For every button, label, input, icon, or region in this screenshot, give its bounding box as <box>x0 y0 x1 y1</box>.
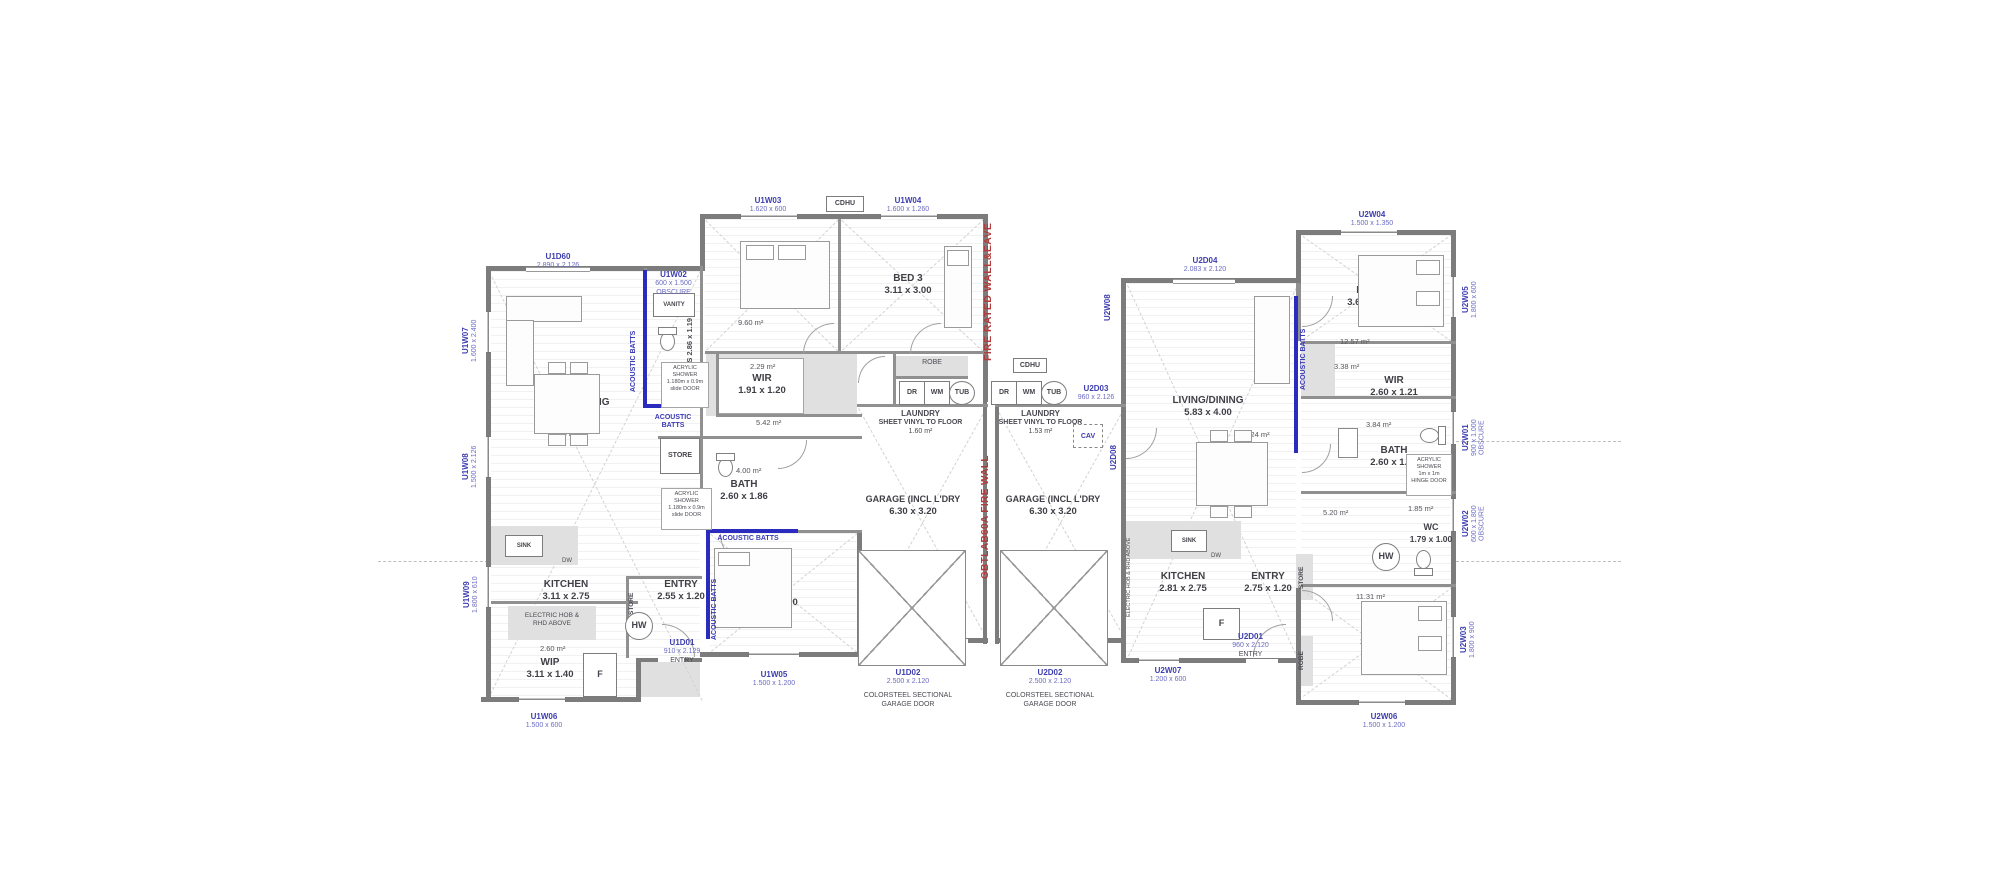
room-dims: 6.30 x 3.20 <box>993 506 1113 518</box>
robe-label: ROBE <box>1298 638 1305 684</box>
colorsteel-line: COLORSTEEL SECTIONAL <box>862 692 954 701</box>
unit1-store-bath: STORE <box>660 438 700 474</box>
opening-code: U2W04 <box>1340 210 1404 220</box>
opening-u1w08: U1W08 1.500 x 2.126 <box>462 442 478 492</box>
room-dims: 1.91 x 1.20 <box>732 385 792 397</box>
opening-code: U1D02 <box>876 668 940 678</box>
window-u1w06 <box>518 697 566 702</box>
opening-code: U2W06 <box>1354 712 1414 722</box>
pillow <box>778 245 806 260</box>
opening-size: 2.083 x 2.120 <box>1173 266 1237 275</box>
unit2-robe: ROBE <box>1298 638 1305 684</box>
room-name: WIR <box>1354 374 1434 387</box>
unit2-bath-toilet <box>1420 428 1439 443</box>
opening-size: 1.200 x 600 <box>1140 676 1196 685</box>
opening-code: U2D03 <box>1070 384 1122 394</box>
unit1-dw: DW <box>562 558 572 566</box>
unit2-bath-area: 3.84 m² <box>1366 420 1391 429</box>
room-name: GARAGE (INCL L'DRY <box>993 494 1113 506</box>
opening-code: U1W07 <box>462 316 471 366</box>
window-u2w04 <box>1340 230 1398 235</box>
window-u1w04 <box>880 214 938 219</box>
opening-u1d60: U1D60 2.890 x 2.126 <box>523 252 593 271</box>
unit1-tub: TUB <box>949 381 975 405</box>
opening-u2d08: U2D08 <box>1110 441 1119 475</box>
opening-code: U1D01 <box>656 638 708 648</box>
opening-u2d04: U2D04 2.083 x 2.120 <box>1173 256 1237 275</box>
unit1-entry-label: ENTRY 2.55 x 1.20 <box>651 578 711 603</box>
opening-u1w06: U1W06 1.500 x 600 <box>516 712 572 731</box>
fire-rated-wall-eave-label: FIRE RATED WALL&EAVE <box>982 218 998 366</box>
room-name: GARAGE (INCL L'DRY <box>853 494 973 506</box>
opening-u2d01: U2D01 960 x 2.120 ENTRY <box>1223 632 1278 660</box>
opening-size: 910 x 2.129 <box>656 648 708 657</box>
acoustic-wall <box>1294 296 1298 453</box>
setout-line-left <box>378 561 488 562</box>
unit1-garage-door-zone <box>858 550 966 666</box>
door-u2d04 <box>1173 279 1235 284</box>
door-u2d01 <box>1246 659 1278 664</box>
hob-line: RHD ABOVE <box>511 620 593 628</box>
window-u1w03 <box>740 214 798 219</box>
unit2-bed1-area: 11.31 m² <box>1356 592 1385 601</box>
unit1-sofa-return <box>506 320 534 386</box>
wall <box>716 414 862 417</box>
unit1-wir-label: WIR 1.91 x 1.20 <box>732 372 792 397</box>
opening-size: 960 x 2.120 <box>1223 642 1278 651</box>
opening-extra: ENTRY <box>656 657 708 666</box>
shower-line: SHOWER <box>1407 464 1451 471</box>
wall <box>893 351 896 407</box>
opening-u2d03: U2D03 960 x 2.126 <box>1070 384 1122 403</box>
window-u1w07 <box>486 311 491 353</box>
window-u2w05 <box>1451 276 1456 318</box>
opening-size: 1.800 x 610 <box>472 570 480 620</box>
unit2-garage-door-zone <box>1000 550 1108 666</box>
opening-code: U1W03 <box>736 196 800 206</box>
unit2-store: STORE <box>1298 556 1305 600</box>
wall <box>636 658 658 662</box>
room-dims: 3.11 x 1.40 <box>518 669 582 681</box>
unit2-wc-label: WC 1.79 x 1.00 <box>1400 522 1462 545</box>
unit2-hob-label: ELECTRIC HOB & RHD ABOVE <box>1126 561 1132 617</box>
room-name: ENTRY <box>651 578 711 591</box>
shower-line: ACRYLIC <box>662 365 708 372</box>
unit1-ens-shower: ACRYLIC SHOWER 1.180m x 0.9m slide DOOR <box>661 362 709 408</box>
opening-code: U1W05 <box>744 670 804 680</box>
unit2-bed2-area: 12.57 m² <box>1340 337 1370 346</box>
colorsteel-line: GARAGE DOOR <box>862 701 954 710</box>
shower-line: HINGE DOOR <box>1407 478 1451 485</box>
acoustic-line: BATTS <box>650 422 696 430</box>
unit1-hob-label: ELECTRIC HOB & RHD ABOVE <box>511 612 593 628</box>
drawing-page: FIRE RATED WALL&EAVE GBTLAB60A FIRE WALL… <box>0 0 2000 879</box>
opening-code: U2D04 <box>1173 256 1237 266</box>
unit1-bath-label: BATH 2.60 x 1.86 <box>704 478 784 503</box>
opening-u2w03: U2W03 1.800 x 900 <box>1460 614 1476 666</box>
opening-code: U1W02 <box>646 270 701 280</box>
chair <box>1210 506 1228 518</box>
unit2-sink: SINK <box>1171 530 1207 552</box>
acoustic-batts-label: ACOUSTIC BATTS <box>713 535 783 543</box>
shower-line: SHOWER <box>662 372 708 379</box>
colorsteel-line: COLORSTEEL SECTIONAL <box>1004 692 1096 701</box>
window-u2w06 <box>1358 700 1406 705</box>
room-name: WC <box>1400 522 1462 534</box>
shower-line: ACRYLIC <box>662 491 711 498</box>
window-u2w03 <box>1451 616 1456 658</box>
opening-u1w07: U1W07 1.600 x 2.400 <box>462 316 478 366</box>
unit1-fridge: F <box>583 653 617 697</box>
unit2-wc-toilet-tank <box>1414 568 1433 576</box>
wall <box>716 354 719 416</box>
shower-line: 1m x 1m <box>1407 471 1451 478</box>
opening-u2w04: U2W04 1.500 x 1.350 <box>1340 210 1404 229</box>
opening-u2d02: U2D02 2.500 x 2.120 <box>1018 668 1082 687</box>
unit2-vanity <box>1338 428 1358 458</box>
unit1-dining-table <box>534 374 600 434</box>
opening-code: U2D01 <box>1223 632 1278 642</box>
window-u2w01 <box>1451 411 1456 445</box>
wall <box>1301 341 1456 344</box>
room-dims: 1.79 x 1.00 <box>1400 534 1462 545</box>
floor-plan: FIRE RATED WALL&EAVE GBTLAB60A FIRE WALL… <box>478 146 1478 756</box>
acoustic-line: ACOUSTIC <box>650 414 696 422</box>
unit2-dryer: DR <box>991 381 1017 405</box>
unit1-bed1-area: 9.60 m² <box>738 318 763 327</box>
opening-size: 1.600 x 2.400 <box>471 316 479 366</box>
unit1-washer: WM <box>924 381 950 405</box>
unit2-garage-label: GARAGE (INCL L'DRY 6.30 x 3.20 <box>993 494 1113 518</box>
shower-line: slide DOOR <box>662 512 711 519</box>
u2-garage-door-note: COLORSTEEL SECTIONAL GARAGE DOOR <box>1004 692 1096 710</box>
pillow <box>746 245 774 260</box>
opening-u1w09: U1W09 1.800 x 610 <box>463 570 479 620</box>
unit2-hw: HW <box>1372 543 1400 571</box>
opening-size: 1.500 x 1.350 <box>1340 220 1404 229</box>
unit2-entry-label: ENTRY 2.75 x 1.20 <box>1233 570 1303 595</box>
unit2-hall-area: 5.20 m² <box>1323 508 1348 517</box>
unit2-sofa <box>1254 296 1290 384</box>
acoustic-wall <box>706 529 798 533</box>
opening-extra: OBSCURE <box>646 289 701 298</box>
opening-code: U1W09 <box>463 570 472 620</box>
chair <box>570 434 588 446</box>
unit2-tub: TUB <box>1041 381 1067 405</box>
unit2-dining-table <box>1196 442 1268 506</box>
chair <box>548 434 566 446</box>
opening-extra: OBSCURE <box>1478 494 1486 554</box>
opening-u1w05: U1W05 1.500 x 1.200 <box>744 670 804 689</box>
u1-garage-door-note: COLORSTEEL SECTIONAL GARAGE DOOR <box>862 692 954 710</box>
unit1-sink: SINK <box>505 535 543 557</box>
opening-code: U2D08 <box>1110 441 1119 475</box>
opening-code: U1W06 <box>516 712 572 722</box>
room-note: SHEET VINYL TO FLOOR <box>873 419 968 428</box>
room-name: WIP <box>518 656 582 669</box>
room-dims: 2.81 x 2.75 <box>1143 583 1223 595</box>
unit2-wir-area: 3.38 m² <box>1334 362 1359 371</box>
store-label: STORE <box>1298 556 1305 600</box>
unit1-bed3-label: BED 3 3.11 x 3.00 <box>868 272 948 297</box>
unit1-garage-label: GARAGE (INCL L'DRY 6.30 x 3.20 <box>853 494 973 518</box>
shower-line: slide DOOR <box>662 386 708 393</box>
shower-line: 1.180m x 0.9m <box>662 505 711 512</box>
shower-line: SHOWER <box>662 498 711 505</box>
opening-size: 2.890 x 2.126 <box>523 262 593 271</box>
acoustic-batts-label: ACOUSTIC BATTS <box>630 318 637 392</box>
room-name: ENTRY <box>1233 570 1303 583</box>
colorsteel-line: GARAGE DOOR <box>1004 701 1096 710</box>
unit2-bath-toilet-tank <box>1438 426 1446 445</box>
room-name: WIR <box>732 372 792 385</box>
opening-extra: OBSCURE <box>1478 408 1486 468</box>
room-dims: 2.55 x 1.20 <box>651 591 711 603</box>
window-u1w05 <box>748 652 800 657</box>
unit1-hw: HW <box>625 612 653 640</box>
acoustic-batts-label: ACOUSTIC BATTS <box>711 574 718 640</box>
window-u1w08 <box>486 436 491 478</box>
opening-u1w03: U1W03 1.620 x 600 <box>736 196 800 215</box>
opening-u2w06: U2W06 1.500 x 1.200 <box>1354 712 1414 731</box>
wall <box>1301 584 1456 587</box>
opening-u1w02: U1W02 600 x 1.500 OBSCURE <box>646 270 701 298</box>
unit1-wir-area: 2.29 m² <box>750 362 775 371</box>
opening-size: 600 x 1.800 <box>1471 494 1479 554</box>
opening-size: 1.620 x 600 <box>736 206 800 215</box>
wall <box>896 376 968 379</box>
opening-size: 1.500 x 1.200 <box>744 680 804 689</box>
chair <box>1234 430 1252 442</box>
room-dims: 2.60 x 1.86 <box>704 491 784 503</box>
window-u1w09 <box>486 566 491 608</box>
room-dims: 3.11 x 2.75 <box>526 591 606 603</box>
wall <box>636 658 641 702</box>
opening-code: U2W03 <box>1460 614 1469 666</box>
wall <box>705 351 986 354</box>
pillow <box>1418 636 1442 651</box>
unit1-robe-label: ROBE <box>899 359 965 368</box>
opening-size: 1.500 x 1.200 <box>1354 722 1414 731</box>
opening-size: 1.800 x 600 <box>1471 274 1479 326</box>
opening-u2w08: U2W08 <box>1104 291 1113 325</box>
opening-code: U1D60 <box>523 252 593 262</box>
room-dims: 2.60 x 1.21 <box>1354 387 1434 399</box>
chair <box>548 362 566 374</box>
unit2-living-label: LIVING/DINING 5.83 x 4.00 <box>1148 394 1268 419</box>
wall <box>700 214 705 271</box>
opening-u1d02: U1D02 2.500 x 2.120 <box>876 668 940 687</box>
opening-u2w01: U2W01 900 x 1.000 OBSCURE <box>1462 408 1486 468</box>
room-name: LIVING/DINING <box>1148 394 1268 407</box>
unit1-ens-toilet-tank <box>658 327 677 335</box>
room-dims: 5.83 x 4.00 <box>1148 407 1268 419</box>
unit1-bath-shower: ACRYLIC SHOWER 1.180m x 0.9m slide DOOR <box>661 488 712 530</box>
pillow <box>947 250 969 266</box>
opening-extra: ENTRY <box>1223 651 1278 660</box>
opening-code: U2W01 <box>1462 408 1471 468</box>
pillow <box>1418 606 1442 621</box>
room-name: LAUNDRY <box>873 409 968 419</box>
opening-size: 1.600 x 1.260 <box>876 206 940 215</box>
opening-size: 900 x 1.000 <box>1471 408 1479 468</box>
opening-size: 1.500 x 600 <box>516 722 572 731</box>
unit2-shower: ACRYLIC SHOWER 1m x 1m HINGE DOOR <box>1406 454 1452 496</box>
opening-size: 1.500 x 2.126 <box>471 442 479 492</box>
unit2-kitchen-label: KITCHEN 2.81 x 2.75 <box>1143 570 1223 595</box>
unit1-wip-label: WIP 3.11 x 1.40 <box>518 656 582 681</box>
door-swing <box>858 356 885 383</box>
room-dims: 3.11 x 3.00 <box>868 285 948 297</box>
unit1-dryer: DR <box>899 381 925 405</box>
opening-size: 960 x 2.126 <box>1070 394 1122 403</box>
opening-code: U1W04 <box>876 196 940 206</box>
unit1-sofa <box>506 296 582 322</box>
room-dims: 2.75 x 1.20 <box>1233 583 1303 595</box>
window-u2w07 <box>1138 658 1180 663</box>
unit1-wip-area: 2.60 m² <box>540 644 565 653</box>
chair <box>1210 430 1228 442</box>
door-swing <box>778 440 807 469</box>
room-name: KITCHEN <box>526 578 606 591</box>
shower-line: 1.180m x 0.9m <box>662 379 708 386</box>
opening-u2w07: U2W07 1.200 x 600 <box>1140 666 1196 685</box>
opening-u2w02: U2W02 600 x 1.800 OBSCURE <box>1462 494 1486 554</box>
opening-code: U1W08 <box>462 442 471 492</box>
unit1-hall-area: 5.42 m² <box>756 418 781 427</box>
unit1-bath-toilet-tank <box>716 453 735 461</box>
unit2-wc-toilet <box>1416 550 1431 569</box>
unit2-wir-label: WIR 2.60 x 1.21 <box>1354 374 1434 399</box>
hob-line: ELECTRIC HOB & <box>511 612 593 620</box>
unit1-bath-area: 4.00 m² <box>736 466 761 475</box>
room-dims: 6.30 x 3.20 <box>853 506 973 518</box>
shower-line: ACRYLIC <box>1407 457 1451 464</box>
acoustic-batts-label: ACOUSTIC BATTS <box>1300 316 1307 390</box>
opening-size: 600 x 1.500 <box>646 280 701 289</box>
room-name: BED 3 <box>868 272 948 285</box>
wall <box>1296 230 1301 283</box>
chair <box>570 362 588 374</box>
opening-size: 2.500 x 2.120 <box>1018 678 1082 687</box>
unit2-washer: WM <box>1016 381 1042 405</box>
opening-code: U2W02 <box>1462 494 1471 554</box>
opening-code: U2W07 <box>1140 666 1196 676</box>
unit1-kitchen-label: KITCHEN 3.11 x 2.75 <box>526 578 606 603</box>
unit2-wc-area: 1.85 m² <box>1408 504 1433 513</box>
unit2-cav: CAV <box>1073 424 1103 448</box>
setout-line-right-2 <box>1456 561 1621 562</box>
pillow <box>718 552 750 566</box>
pillow <box>1416 291 1440 306</box>
opening-size: 2.500 x 2.120 <box>876 678 940 687</box>
unit1-laundry-label: LAUNDRY SHEET VINYL TO FLOOR 1.60 m² <box>873 409 968 437</box>
pillow <box>1416 260 1440 275</box>
opening-code: U2D02 <box>1018 668 1082 678</box>
wall <box>838 219 841 353</box>
chair <box>1234 506 1252 518</box>
room-name: BATH <box>704 478 784 491</box>
room-area: 1.60 m² <box>873 428 968 437</box>
opening-code: U2W05 <box>1462 274 1471 326</box>
acoustic-batts-label: ACOUSTIC BATTS <box>650 414 696 431</box>
room-name: KITCHEN <box>1143 570 1223 583</box>
opening-code: U2W08 <box>1104 291 1113 325</box>
opening-size: 1.800 x 900 <box>1469 614 1477 666</box>
room-name: LAUNDRY <box>993 409 1088 419</box>
unit2-dw: DW <box>1211 553 1221 561</box>
opening-u1d01: U1D01 910 x 2.129 ENTRY <box>656 638 708 666</box>
opening-u2w05: U2W05 1.800 x 600 <box>1462 274 1478 326</box>
unit1-cdhu: CDHU <box>826 196 864 212</box>
unit2-cdhu: CDHU <box>1013 358 1047 373</box>
opening-u1w04: U1W04 1.600 x 1.260 <box>876 196 940 215</box>
